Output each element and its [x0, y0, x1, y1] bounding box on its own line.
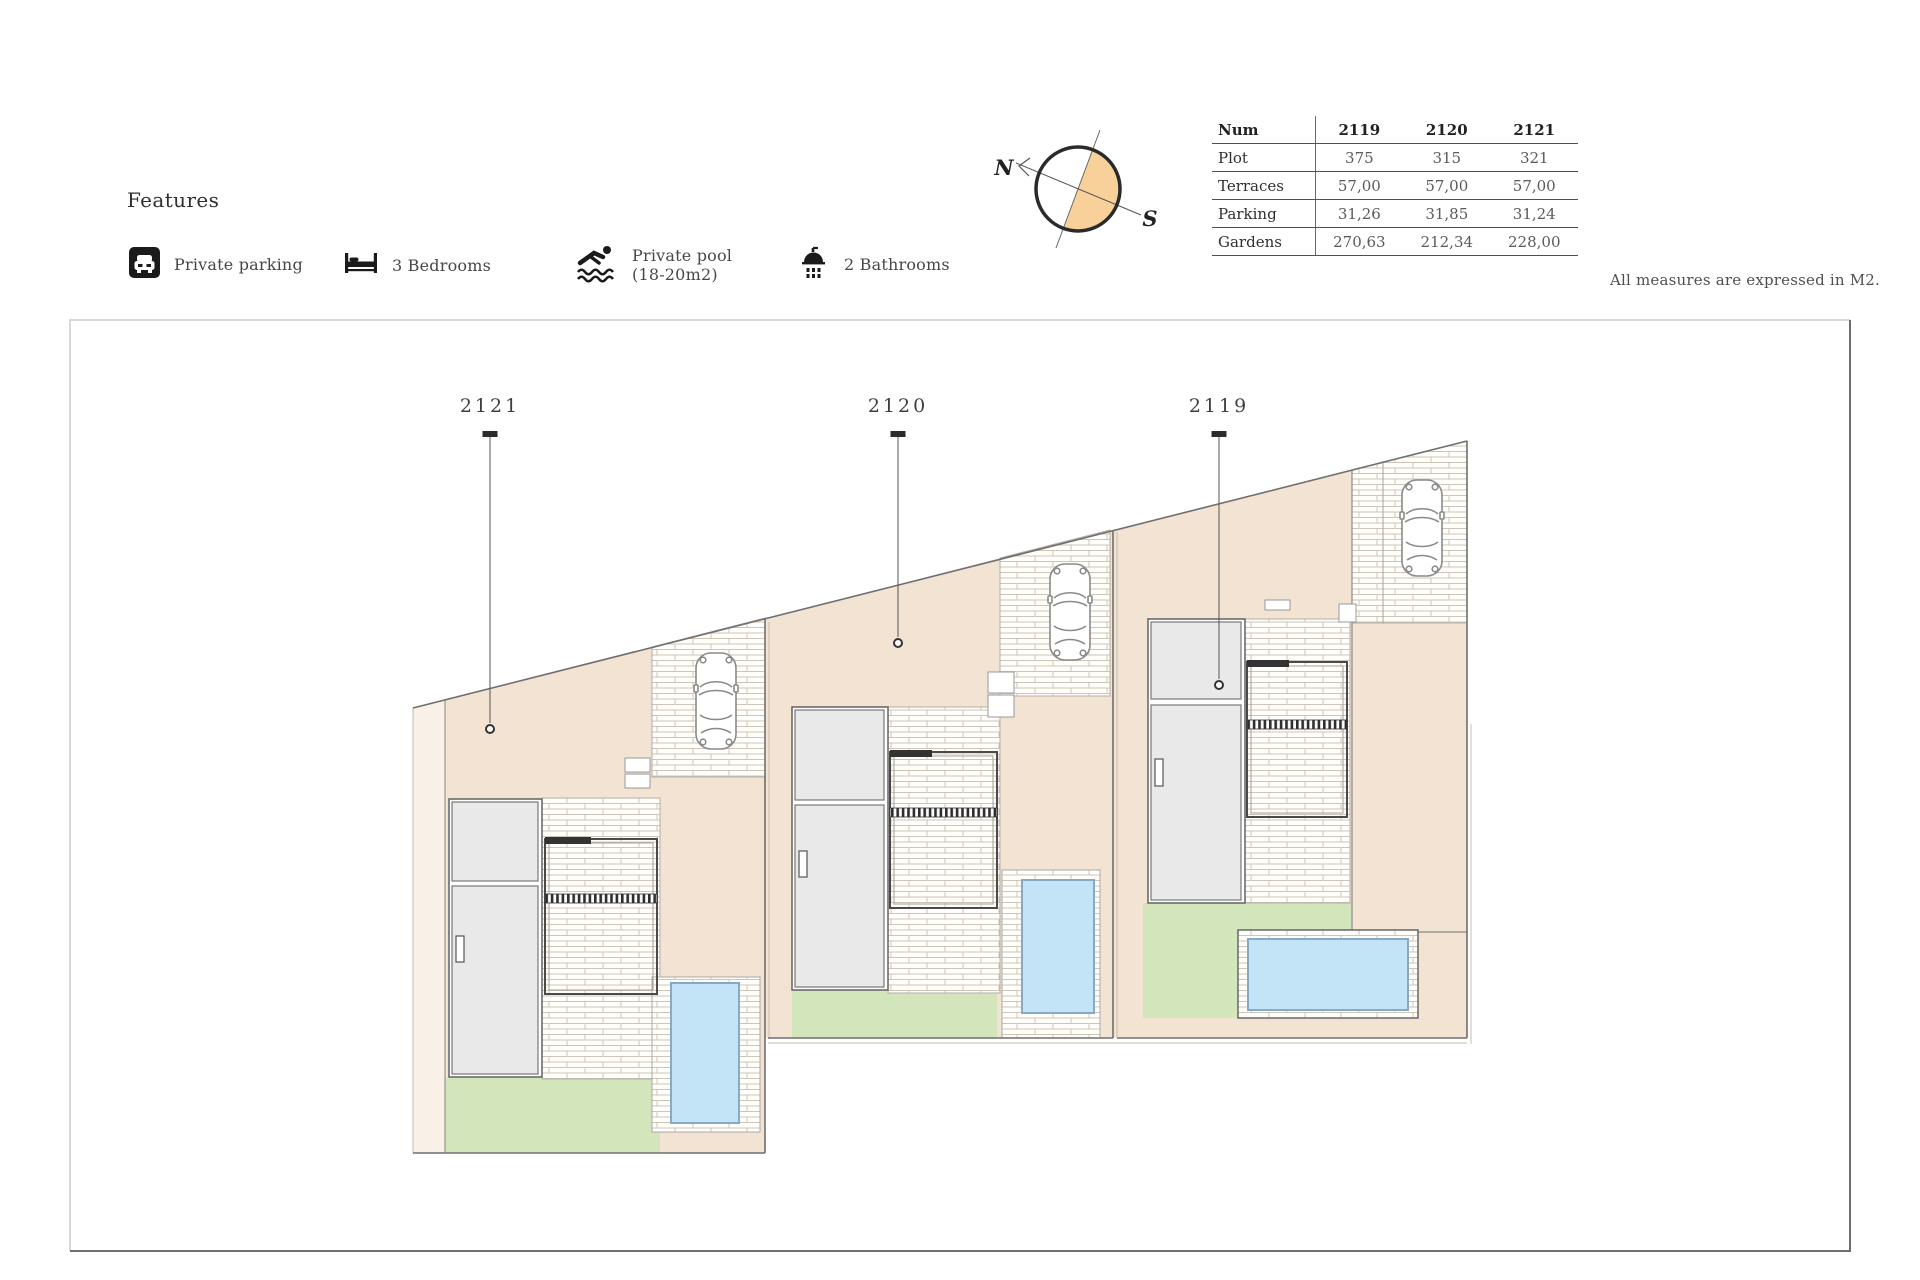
pool	[671, 983, 739, 1123]
steps	[625, 758, 650, 772]
building	[449, 799, 542, 1077]
svg-text:2120: 2120	[868, 395, 928, 417]
building	[1148, 619, 1245, 903]
leader-dot	[1215, 681, 1223, 689]
garden	[792, 990, 997, 1038]
steps	[625, 774, 650, 788]
door	[1155, 759, 1163, 786]
parcel-left-strip	[413, 700, 445, 1153]
car-icon	[1400, 480, 1444, 576]
compass-south-label: S	[1142, 206, 1157, 231]
garden	[445, 1078, 660, 1153]
car-icon	[1048, 564, 1092, 660]
steps	[988, 695, 1014, 717]
steps	[1265, 600, 1290, 610]
car-icon	[694, 653, 738, 749]
door	[456, 936, 464, 962]
steps	[988, 672, 1014, 693]
svg-text:2119: 2119	[1189, 395, 1249, 417]
steps	[1339, 604, 1356, 622]
leader-dot	[486, 725, 494, 733]
compass: N S	[993, 130, 1157, 248]
svg-text:2121: 2121	[460, 395, 520, 417]
door	[799, 851, 807, 877]
page: { "features": { "title": "Features", "it…	[0, 0, 1920, 1280]
site-plan: 2121 2120 2119 N S	[0, 0, 1920, 1280]
compass-north-label: N	[993, 155, 1014, 180]
pool	[1022, 880, 1094, 1013]
leader-dot	[894, 639, 902, 647]
terrace-paving	[888, 707, 1000, 993]
pool	[1248, 939, 1408, 1010]
building	[792, 707, 888, 990]
